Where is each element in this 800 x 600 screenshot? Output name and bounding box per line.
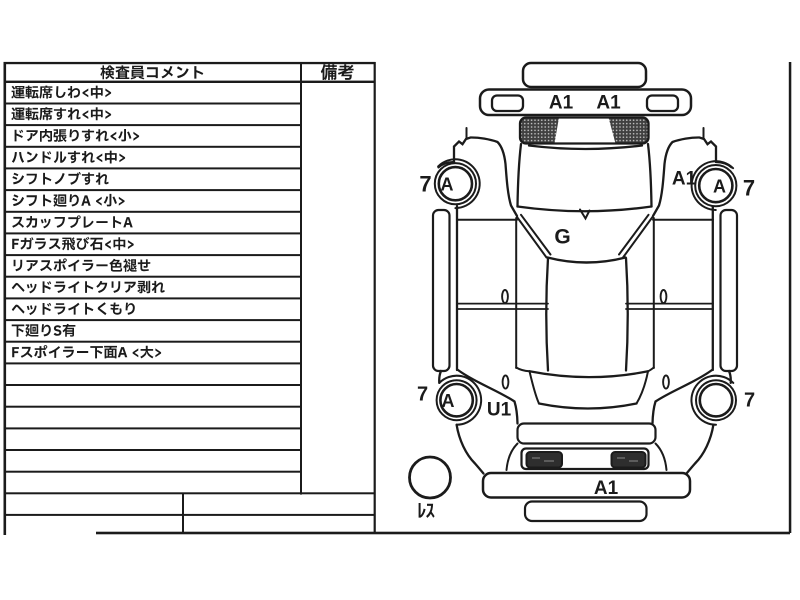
svg-text:A1: A1 (596, 93, 621, 114)
svg-text:A1: A1 (672, 169, 697, 190)
svg-text:A: A (442, 391, 455, 411)
svg-text:7: 7 (743, 176, 755, 201)
svg-text:A: A (713, 177, 726, 197)
svg-text:7: 7 (419, 172, 431, 197)
svg-text:A: A (441, 175, 454, 195)
svg-text:U1: U1 (487, 400, 512, 421)
svg-text:A1: A1 (549, 93, 574, 114)
svg-text:7: 7 (744, 390, 755, 412)
svg-text:G: G (554, 226, 570, 249)
svg-text:7: 7 (417, 384, 428, 406)
svg-text:A1: A1 (594, 478, 619, 499)
